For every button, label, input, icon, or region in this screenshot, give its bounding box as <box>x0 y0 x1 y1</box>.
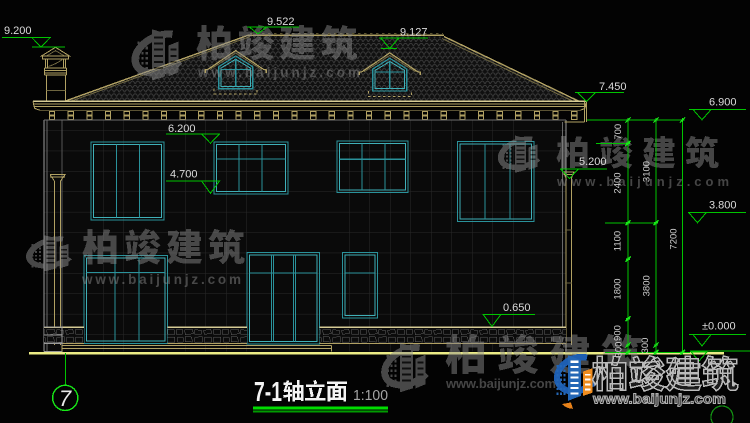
svg-text:±0.000: ±0.000 <box>702 320 736 332</box>
svg-text:300: 300 <box>640 338 651 354</box>
svg-text:7.450: 7.450 <box>599 81 627 93</box>
svg-text:www.baijunjz.com: www.baijunjz.com <box>445 376 556 391</box>
svg-text:6.900: 6.900 <box>709 97 737 109</box>
svg-text:1:100: 1:100 <box>353 388 388 404</box>
svg-text:9.200: 9.200 <box>4 25 32 37</box>
svg-text:4.700: 4.700 <box>170 168 198 180</box>
svg-text:2400: 2400 <box>613 172 624 193</box>
svg-text:7200: 7200 <box>669 228 680 249</box>
svg-text:1800: 1800 <box>613 278 624 299</box>
svg-text:7: 7 <box>59 386 72 411</box>
svg-text:7-1: 7-1 <box>254 376 282 407</box>
svg-text:3.800: 3.800 <box>709 200 737 212</box>
svg-text:700: 700 <box>613 124 624 140</box>
svg-text:3100: 3100 <box>642 161 653 182</box>
svg-text:1100: 1100 <box>613 231 624 251</box>
svg-text:3800: 3800 <box>642 275 653 296</box>
svg-text:www.baijunjz.com: www.baijunjz.com <box>592 391 726 407</box>
svg-text:5.200: 5.200 <box>579 156 607 168</box>
svg-text:9.127: 9.127 <box>400 26 428 38</box>
svg-text:0.650: 0.650 <box>503 302 531 314</box>
svg-text:6.200: 6.200 <box>168 123 196 135</box>
svg-text:900: 900 <box>613 325 624 341</box>
svg-text:300: 300 <box>614 342 625 358</box>
